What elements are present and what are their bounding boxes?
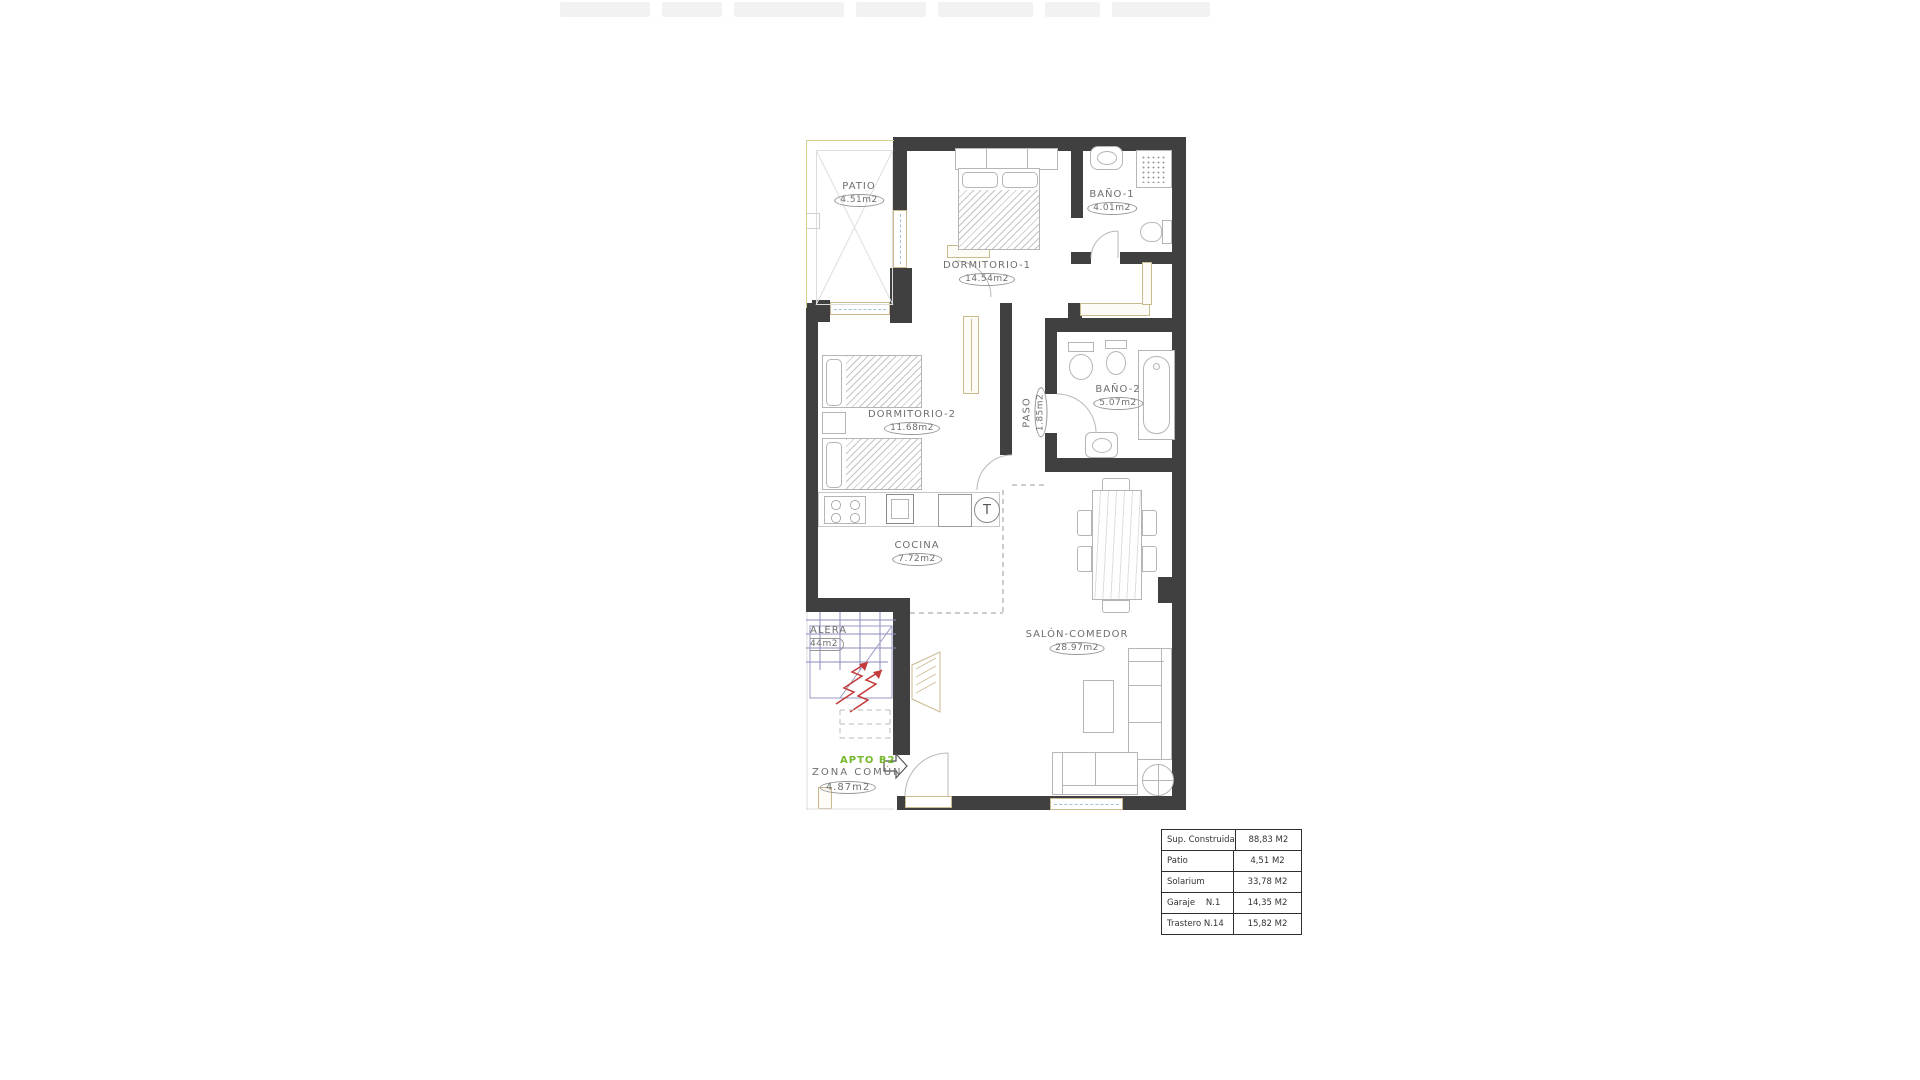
apartment-label: APTO B2 bbox=[840, 755, 895, 766]
room-label-zona-comun: ZONA COMÚN bbox=[812, 767, 903, 778]
table-row: Patio 4,51 M2 bbox=[1162, 851, 1301, 872]
zona-comun-area: 4.87m2 bbox=[820, 781, 876, 794]
floor-plan: T bbox=[806, 137, 1186, 810]
room-label-escalera-cropped: ALERA 44m2 bbox=[810, 624, 847, 651]
plan-linework bbox=[806, 137, 1186, 810]
table-row: Sup. Construida 88,83 M2 bbox=[1162, 830, 1301, 851]
surface-summary-table: Sup. Construida 88,83 M2 Patio 4,51 M2 S… bbox=[1161, 829, 1302, 935]
room-label-patio: PATIO 4.51m2 bbox=[834, 180, 884, 207]
room-label-bano-2: BAÑO-2 5.07m2 bbox=[1093, 383, 1143, 410]
table-row: Garaje N.1 14,35 M2 bbox=[1162, 893, 1301, 914]
floorplan-page: { "plan": { "apartment_label": "APTO B2"… bbox=[0, 0, 1920, 1080]
room-label-cocina: COCINA 7.72m2 bbox=[892, 539, 942, 566]
table-row: Solarium 33,78 M2 bbox=[1162, 872, 1301, 893]
room-label-bano-1: BAÑO-1 4.01m2 bbox=[1087, 188, 1137, 215]
room-label-paso: PASO 1.85m2 bbox=[1021, 388, 1048, 438]
room-label-dormitorio-1: DORMITORIO-1 14.54m2 bbox=[943, 259, 1031, 286]
room-label-dormitorio-2: DORMITORIO-2 11.68m2 bbox=[868, 408, 956, 435]
room-label-salon-comedor: SALÓN-COMEDOR 28.97m2 bbox=[1026, 628, 1129, 655]
table-row: Trastero N.14 15,82 M2 bbox=[1162, 914, 1301, 934]
